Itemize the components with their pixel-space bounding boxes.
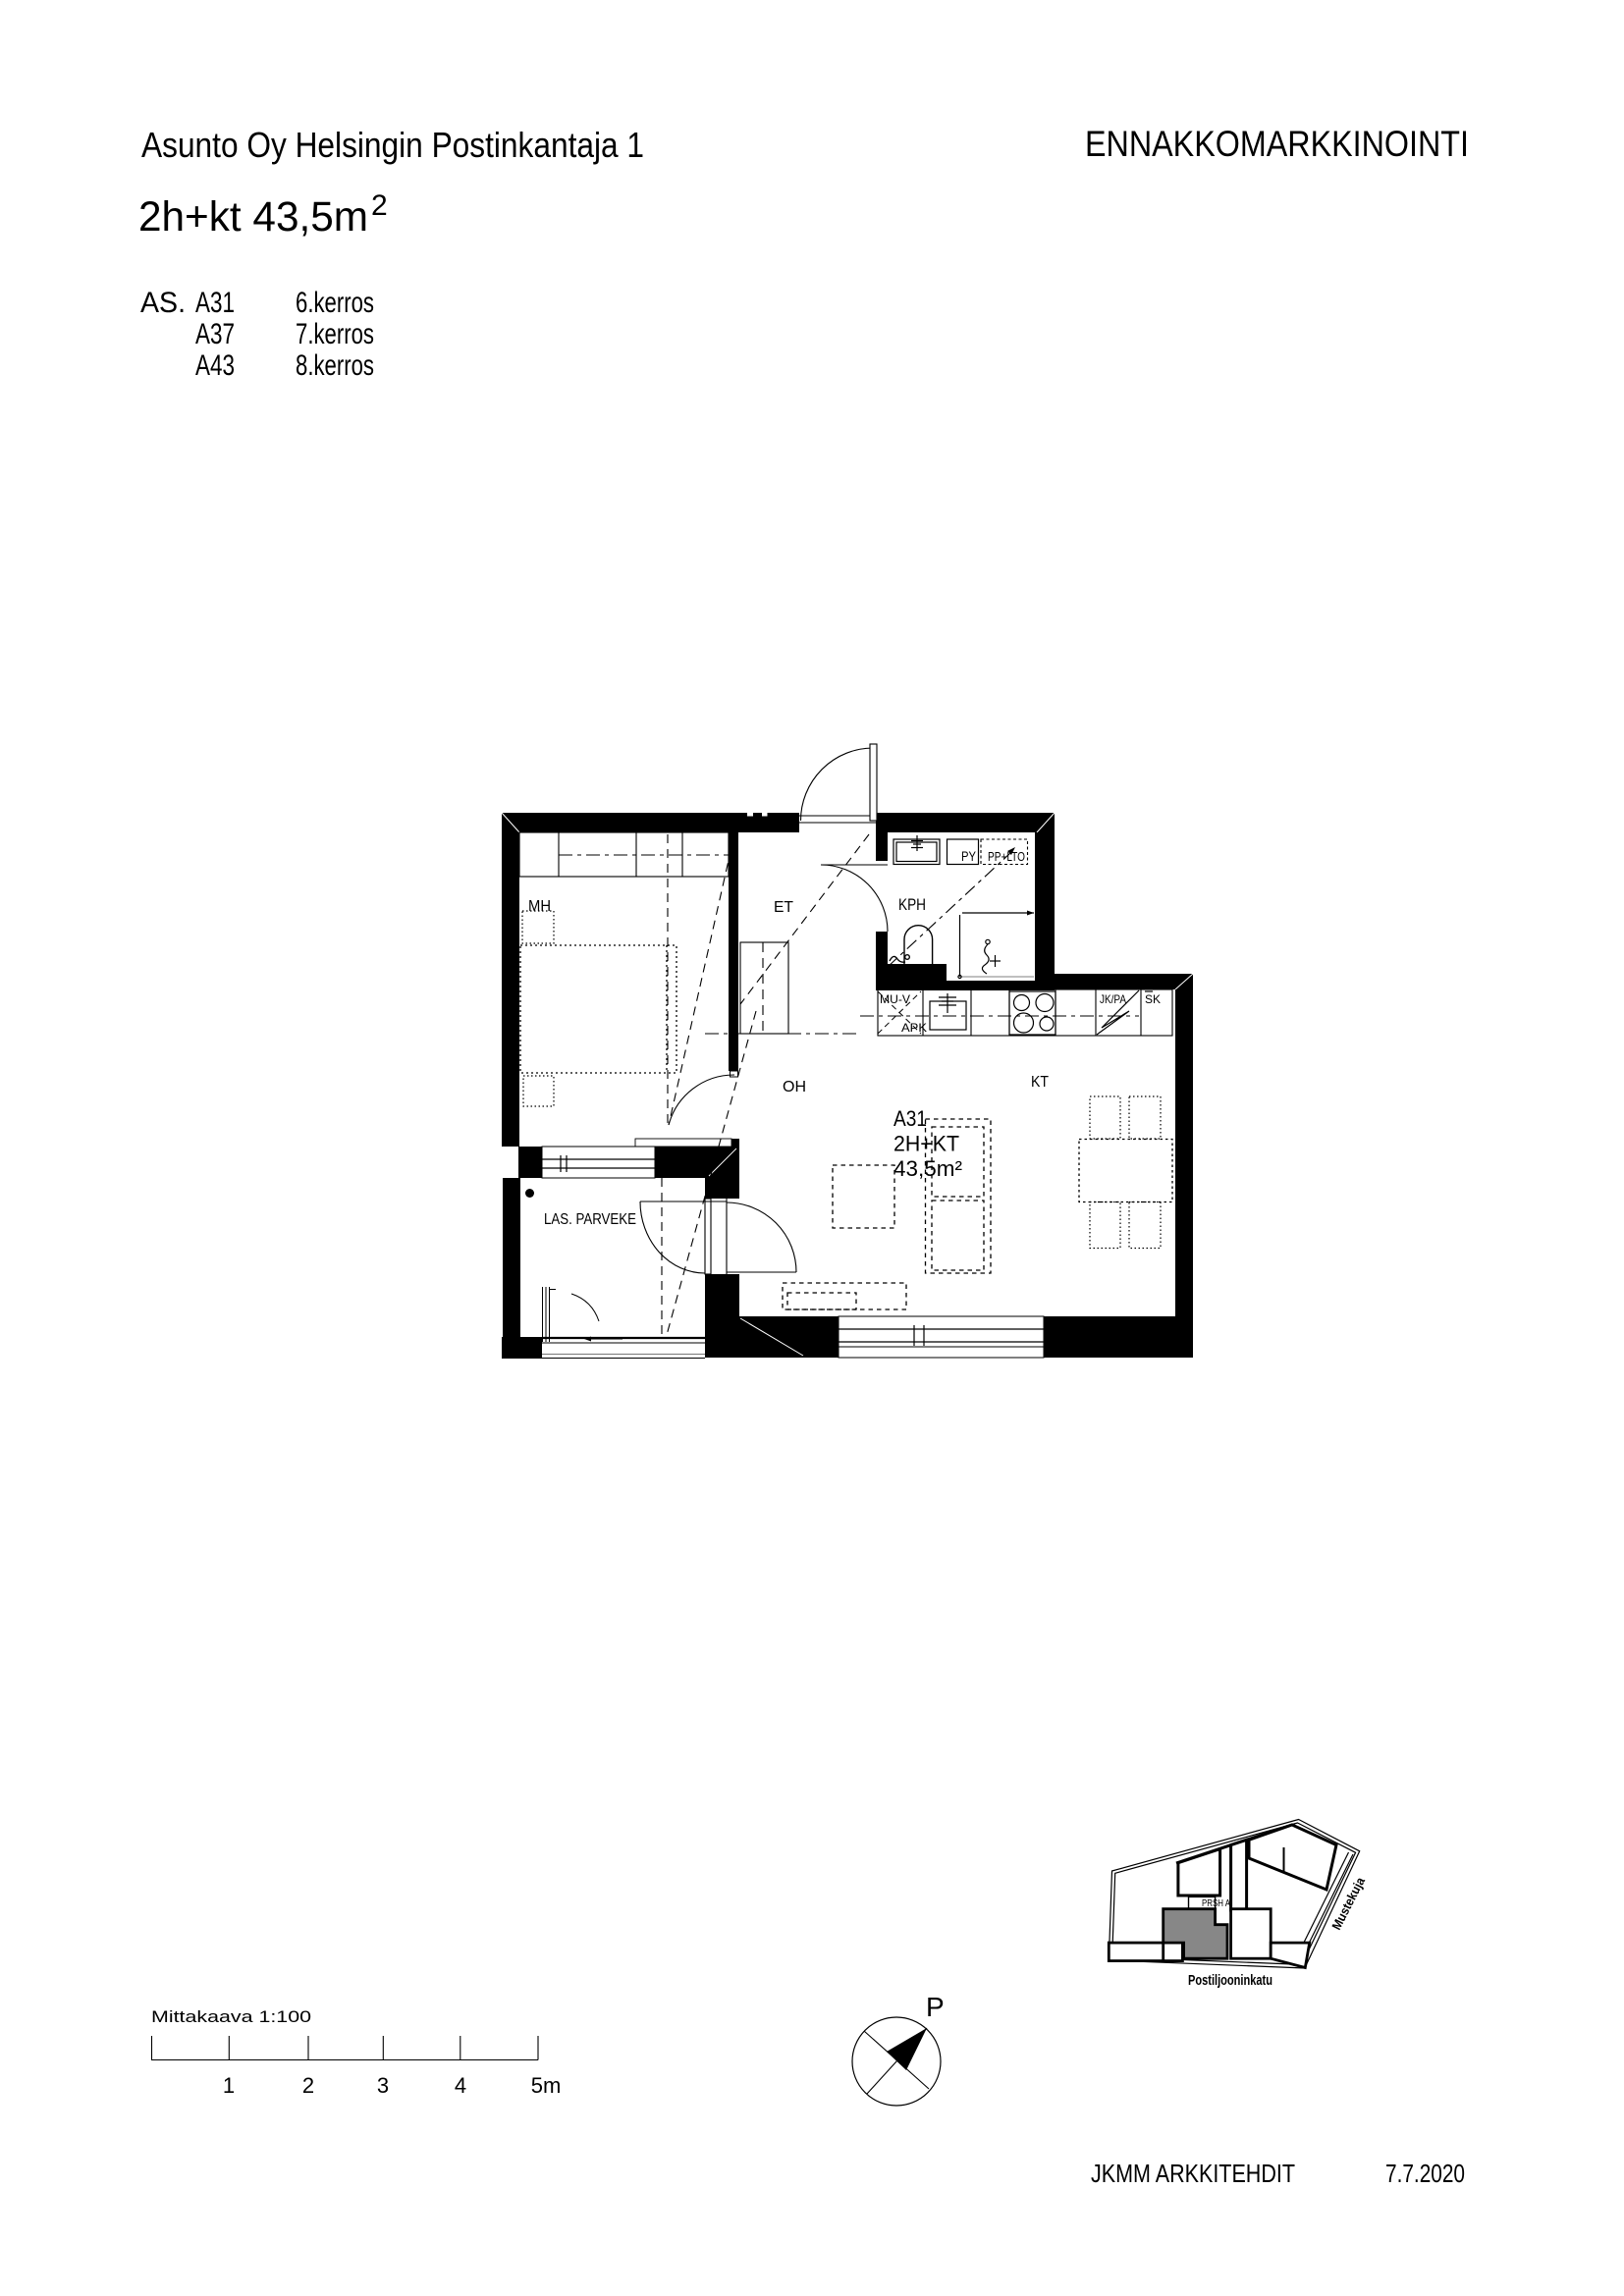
svg-text:3: 3 — [377, 2073, 389, 2098]
svg-text:ET: ET — [774, 899, 793, 916]
svg-text:KT: KT — [1031, 1074, 1049, 1091]
svg-text:Postiljooninkatu: Postiljooninkatu — [1188, 1972, 1272, 1989]
svg-text:2: 2 — [371, 189, 388, 222]
svg-text:1: 1 — [223, 2073, 235, 2098]
svg-text:6.kerros: 6.kerros — [296, 287, 374, 319]
svg-text:A31: A31 — [195, 287, 235, 319]
svg-text:PRSH A: PRSH A — [1202, 1898, 1230, 1909]
svg-text:OH: OH — [783, 1079, 806, 1095]
svg-text:LAS. PARVEKE: LAS. PARVEKE — [544, 1211, 636, 1228]
svg-text:2H+KT: 2H+KT — [893, 1132, 959, 1156]
svg-text:Mittakaava 1:100: Mittakaava 1:100 — [151, 2007, 311, 2026]
svg-text:JK/PA: JK/PA — [1100, 992, 1126, 1006]
svg-text:2: 2 — [302, 2073, 314, 2098]
svg-text:KPH: KPH — [898, 896, 926, 914]
svg-text:JKMM ARKKITEHDIT: JKMM ARKKITEHDIT — [1091, 2159, 1295, 2188]
svg-text:2h+kt 43,5m: 2h+kt 43,5m — [138, 193, 368, 240]
svg-text:7.7.2020: 7.7.2020 — [1385, 2159, 1465, 2188]
svg-text:A43: A43 — [195, 349, 235, 382]
svg-text:APK: APK — [901, 1021, 927, 1035]
svg-text:A37: A37 — [195, 318, 235, 350]
svg-text:7.kerros: 7.kerros — [296, 318, 374, 350]
svg-text:8.kerros: 8.kerros — [296, 349, 374, 382]
svg-text:MH: MH — [528, 898, 551, 915]
svg-text:ENNAKKOMARKKINOINTI: ENNAKKOMARKKINOINTI — [1085, 124, 1469, 164]
svg-text:MU-V: MU-V — [880, 992, 910, 1006]
svg-text:AS.: AS. — [140, 287, 186, 319]
svg-text:43,5m²: 43,5m² — [893, 1156, 962, 1181]
svg-text:SK: SK — [1145, 992, 1161, 1006]
svg-text:5m: 5m — [531, 2073, 562, 2098]
svg-text:Asunto Oy Helsingin Postinkant: Asunto Oy Helsingin Postinkantaja 1 — [141, 125, 644, 165]
svg-text:4: 4 — [455, 2073, 466, 2098]
svg-text:PY: PY — [961, 848, 977, 864]
svg-text:P: P — [926, 1992, 945, 2022]
svg-text:A31: A31 — [893, 1106, 927, 1131]
